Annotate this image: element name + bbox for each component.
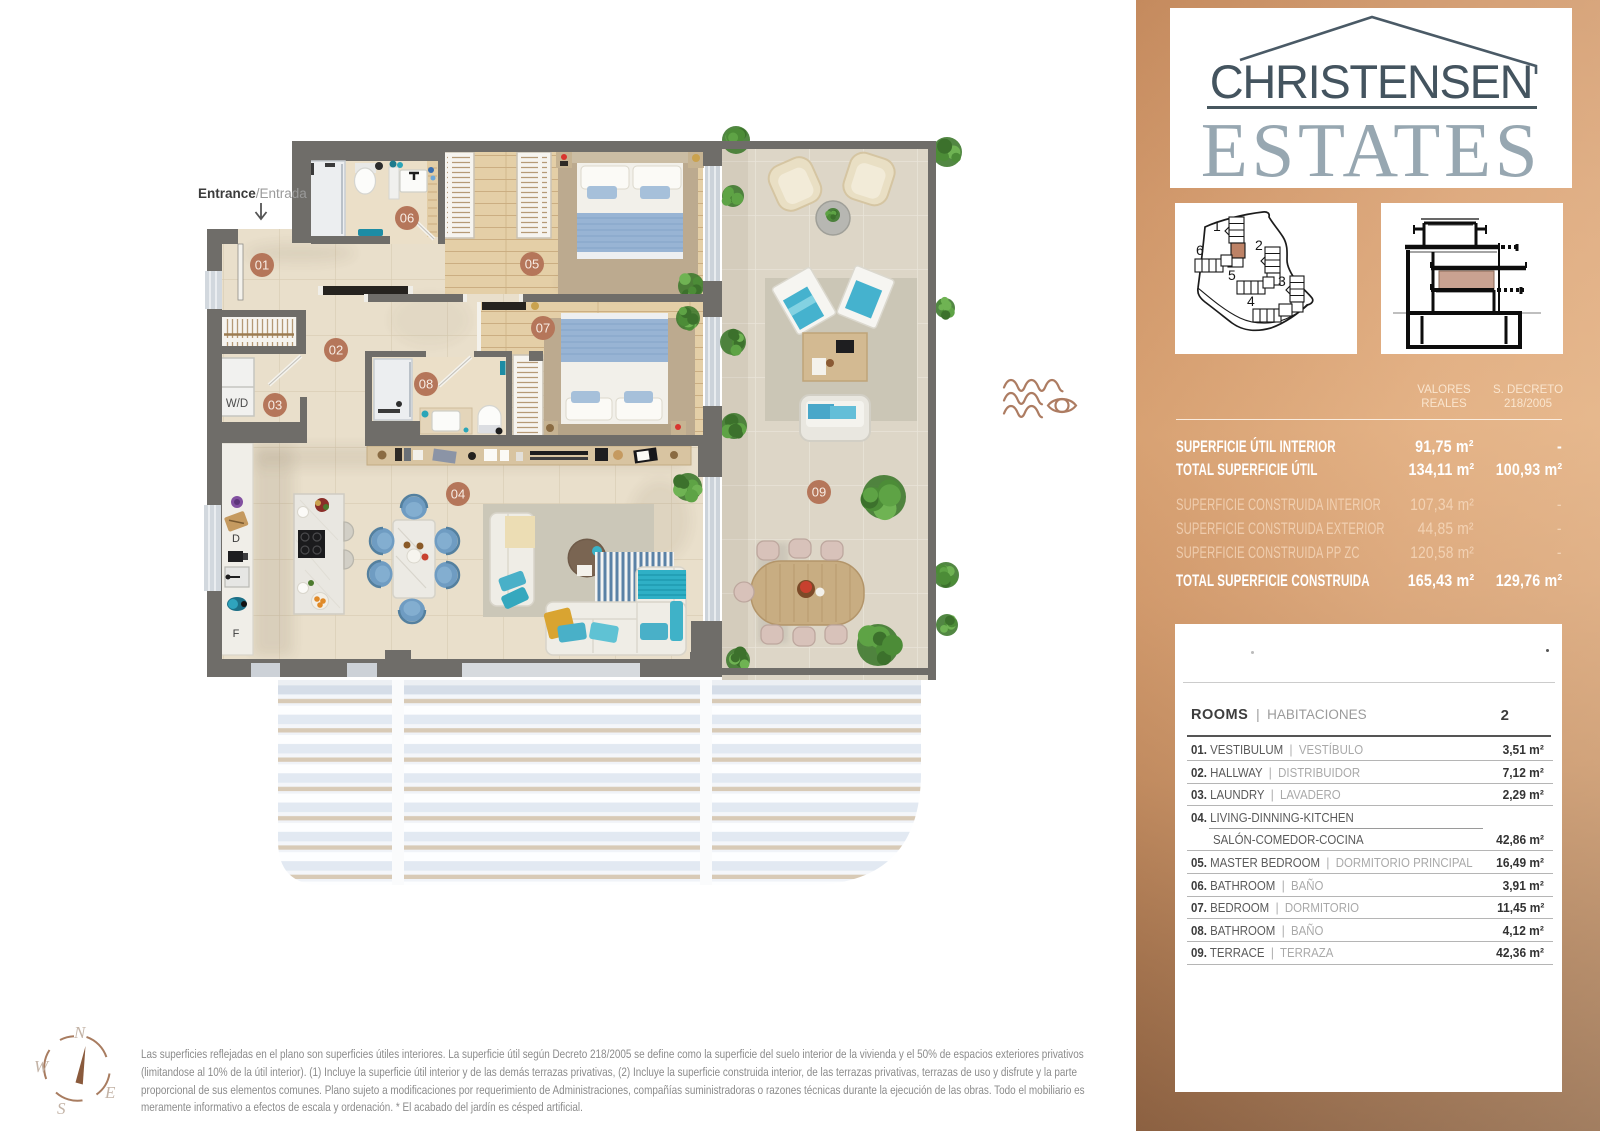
svg-text:01: 01 (255, 258, 269, 273)
svg-text:S: S (57, 1099, 66, 1118)
svg-text:E: E (104, 1083, 116, 1102)
svg-text:3: 3 (1278, 273, 1286, 289)
svg-text:1: 1 (1213, 218, 1221, 234)
svg-text:08: 08 (419, 377, 433, 392)
svg-text:04: 04 (451, 487, 465, 502)
svg-text:W/D: W/D (226, 398, 248, 410)
svg-text:4: 4 (1247, 293, 1255, 309)
svg-text:N: N (73, 1023, 87, 1042)
svg-text:2: 2 (1255, 237, 1263, 253)
svg-text:D: D (232, 533, 240, 545)
svg-text:5: 5 (1228, 267, 1236, 283)
svg-text:6: 6 (1196, 242, 1204, 258)
svg-text:02: 02 (329, 343, 343, 358)
svg-text:09: 09 (812, 485, 826, 500)
svg-text:W: W (34, 1057, 50, 1076)
svg-text:05: 05 (525, 257, 539, 272)
svg-text:07: 07 (536, 321, 550, 336)
svg-text:F: F (233, 628, 240, 640)
svg-text:03: 03 (268, 398, 282, 413)
svg-text:06: 06 (400, 211, 414, 226)
